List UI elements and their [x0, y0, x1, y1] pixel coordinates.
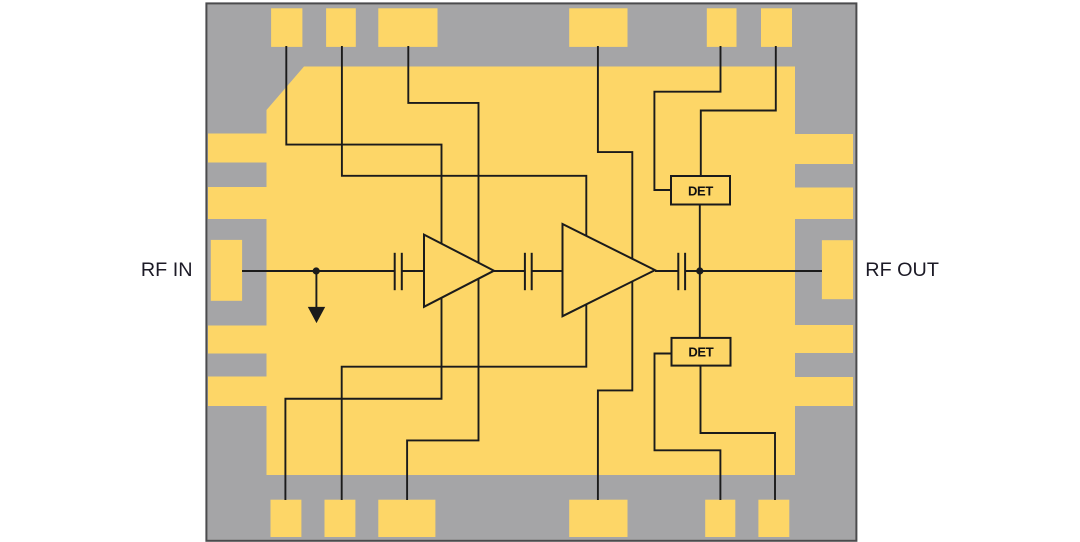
svg-text:DET: DET	[688, 345, 713, 360]
svg-text:DET: DET	[688, 183, 713, 198]
svg-text:RF OUT: RF OUT	[865, 259, 939, 281]
svg-text:RF IN: RF IN	[141, 259, 193, 281]
